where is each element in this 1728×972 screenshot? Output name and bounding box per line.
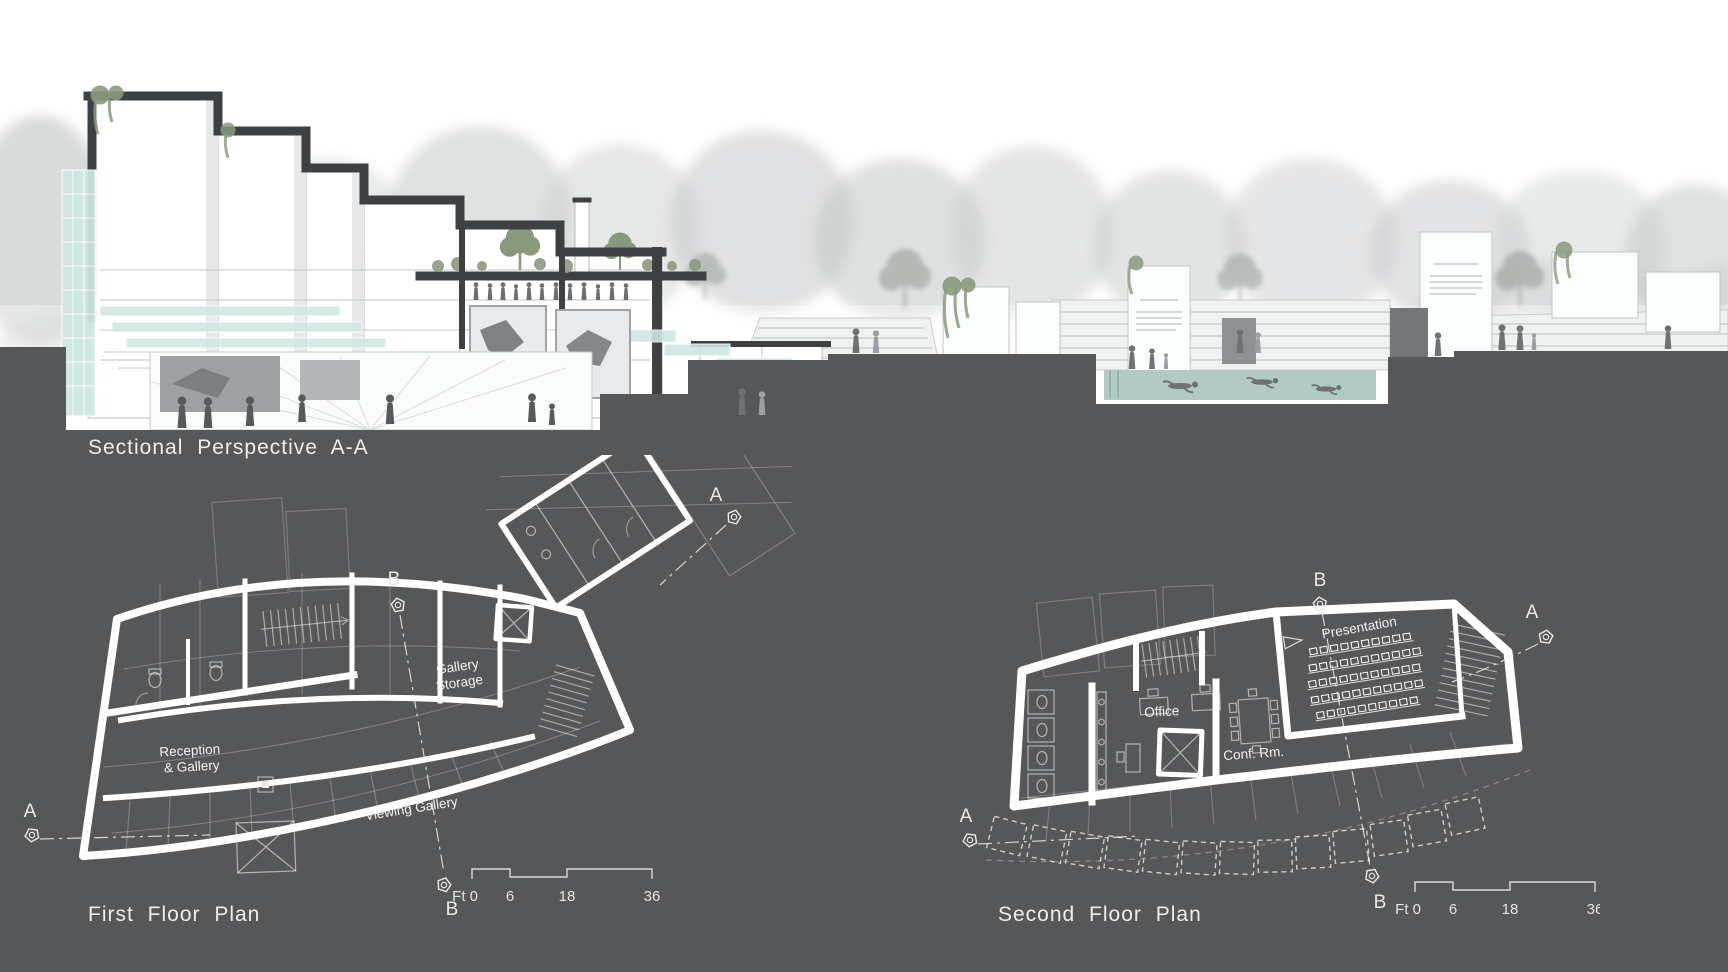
room-label-reception-1: Reception (159, 741, 220, 759)
first-floor-plan-title: First Floor Plan (88, 903, 260, 927)
pentagon-marker-icon (436, 877, 453, 894)
pool (1104, 370, 1376, 400)
pentagon-marker-icon (390, 597, 405, 612)
room-label-office: Office (1144, 703, 1180, 720)
elevator-icon (1158, 730, 1202, 775)
stair-icon (1139, 635, 1208, 678)
terrace-dashed-squares (987, 797, 1485, 875)
scale-label-six: 6 (506, 888, 514, 905)
scale-label-eighteen: 18 (1502, 901, 1519, 918)
section-title: Sectional Perspective A-A (88, 436, 369, 460)
presentation-board: A B A B Gallery Storage Reception & Gall… (0, 0, 1728, 972)
room-label-presentation: Presentation (1321, 614, 1398, 642)
annex-wing (475, 455, 820, 667)
wing-wall (1454, 604, 1462, 716)
section-marker-a-left: A (960, 806, 973, 827)
section-marker-b-top: B (388, 569, 401, 590)
pedestal-icon (262, 781, 269, 788)
sectional-perspective-drawing (0, 0, 1728, 470)
pentagon-marker-icon (962, 833, 977, 848)
scale-label-six: 6 (1449, 901, 1457, 918)
scale-label-thirtysix: 36 (644, 888, 661, 905)
scale-bar: Ft 0 6 18 36 (452, 869, 660, 905)
scale-label-zero: Ft 0 (452, 888, 478, 905)
second-floor-plan-title: Second Floor Plan (998, 903, 1202, 927)
section-marker-b-bottom: B (1374, 892, 1387, 913)
scale-label-eighteen: 18 (559, 888, 576, 905)
scale-bar: Ft 0 6 18 36 (1395, 882, 1600, 918)
stair-icon (259, 602, 350, 647)
lower-gallery-interior (150, 352, 592, 430)
section-marker-a-left: A (24, 801, 37, 822)
section-marker-a-right: A (1526, 602, 1539, 623)
pentagon-marker-icon (1539, 629, 1554, 644)
terrace-edge-dashed (986, 770, 1530, 862)
room-label-conference: Conf. Rm. (1223, 744, 1285, 763)
section-marker-a-top: A (710, 485, 723, 506)
first-floor-plan-drawing: A B A B Gallery Storage Reception & Gall… (20, 455, 820, 925)
pentagon-marker-icon (1365, 869, 1380, 884)
dark-display-board (1390, 308, 1428, 364)
second-floor-plan-drawing: B A A B Presentation Office Conf. Rm. Ft… (840, 540, 1600, 972)
pentagon-marker-icon (726, 509, 742, 525)
scale-label-thirtysix: 36 (1587, 901, 1600, 918)
room-label-reception-2: & Gallery (164, 758, 220, 776)
exterior-walls (83, 581, 630, 856)
scale-label-zero: Ft 0 (1395, 901, 1421, 918)
mural (300, 360, 360, 400)
projection-icon (1283, 634, 1303, 649)
pentagon-marker-icon (24, 828, 39, 843)
section-marker-b-top: B (1314, 570, 1327, 591)
